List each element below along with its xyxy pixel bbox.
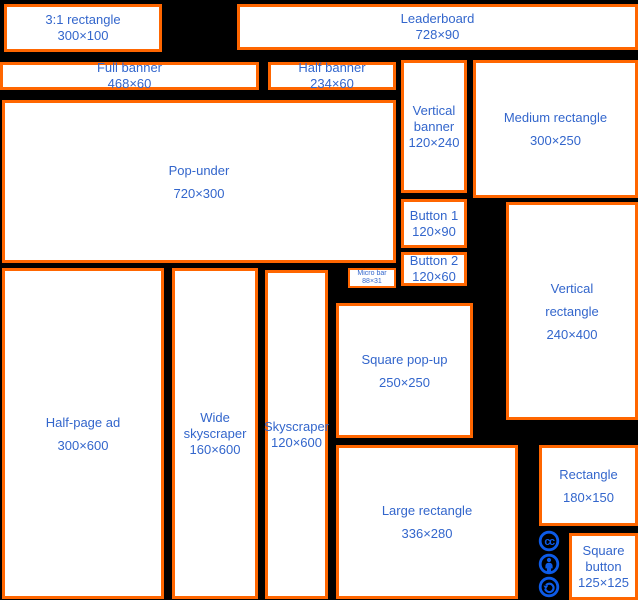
box-size: 120×90 (412, 224, 456, 240)
box-size: 720×300 (174, 182, 225, 205)
box-size: 234×60 (310, 76, 354, 92)
box-half-banner: Half banner 234×60 (268, 62, 396, 90)
box-size: 300×250 (530, 129, 581, 152)
box-size: 120×600 (271, 435, 322, 451)
box-label: Vertical (551, 277, 594, 300)
box-size: 336×280 (402, 522, 453, 545)
box-size: 160×600 (190, 442, 241, 458)
box-size: 300×600 (58, 434, 109, 457)
box-wide-skyscraper: Wide skyscraper 160×600 (172, 268, 258, 599)
box-rectangle: Rectangle 180×150 (539, 445, 638, 526)
box-label: Wide (200, 410, 230, 426)
box-size: 728×90 (416, 27, 460, 43)
box-label: Full banner (97, 60, 162, 76)
box-size: 468×60 (108, 76, 152, 92)
box-label: skyscraper (184, 426, 247, 442)
cc-license-icons: cc (537, 530, 561, 598)
cc-share-alike-icon (537, 576, 561, 598)
box-vertical-rectangle: Vertical rectangle 240×400 (506, 202, 638, 420)
box-large-rectangle: Large rectangle 336×280 (336, 445, 518, 599)
box-medium-rectangle: Medium rectangle 300×250 (473, 60, 638, 198)
box-button-2: Button 2 120×60 (401, 252, 467, 286)
box-square-button: Square button 125×125 (569, 533, 638, 600)
box-label: banner (414, 119, 454, 135)
box-size: 180×150 (563, 486, 614, 509)
box-label: rectangle (545, 300, 598, 323)
box-label: Button 1 (410, 208, 458, 224)
box-label: Square pop-up (361, 348, 447, 371)
box-label: Half-page ad (46, 411, 120, 434)
box-label: Rectangle (559, 463, 618, 486)
box-label: Button 2 (410, 253, 458, 269)
box-vertical-banner: Vertical banner 120×240 (401, 60, 467, 193)
box-label: Half banner (298, 60, 365, 76)
box-square-pop-up: Square pop-up 250×250 (336, 303, 473, 438)
box-micro-bar: Micro bar 88×31 (348, 268, 396, 288)
cc-attribution-icon (537, 553, 561, 575)
box-label: Leaderboard (401, 11, 475, 27)
box-size: 120×240 (409, 135, 460, 151)
box-size: 120×60 (412, 269, 456, 285)
box-label: Large rectangle (382, 499, 472, 522)
box-pop-under: Pop-under 720×300 (2, 100, 396, 263)
box-skyscraper: Skyscraper 120×600 (265, 270, 328, 599)
box-button-1: Button 1 120×90 (401, 199, 467, 248)
box-size: 240×400 (547, 323, 598, 346)
box-size: 88×31 (362, 278, 382, 286)
box-size: 250×250 (379, 371, 430, 394)
box-3-1-rectangle: 3:1 rectangle 300×100 (4, 4, 162, 52)
box-leaderboard: Leaderboard 728×90 (237, 4, 638, 50)
box-label: Micro bar (357, 270, 386, 278)
box-half-page-ad: Half-page ad 300×600 (2, 268, 164, 599)
box-label: button (585, 559, 621, 575)
box-label: Vertical (413, 103, 456, 119)
box-label: Skyscraper (264, 419, 329, 435)
box-size: 125×125 (578, 575, 629, 591)
box-size: 300×100 (58, 28, 109, 44)
box-label: Square (583, 543, 625, 559)
cc-logo-icon: cc (537, 530, 561, 552)
box-full-banner: Full banner 468×60 (0, 62, 259, 90)
box-label: Pop-under (169, 159, 230, 182)
box-label: 3:1 rectangle (45, 12, 120, 28)
box-label: Medium rectangle (504, 106, 607, 129)
svg-text:cc: cc (544, 536, 555, 548)
